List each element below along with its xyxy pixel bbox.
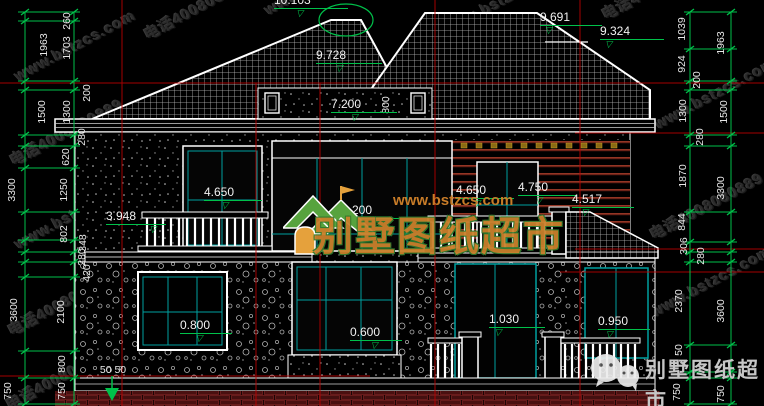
dim-label: 802 (58, 225, 70, 243)
elevation-marker: 9.728▽ (316, 49, 382, 64)
elevation-marker: 9.691▽ (540, 11, 602, 26)
cad-elevation-screenshot: www.bstzcs.com 电话4008080889 www.bstzcs.c… (0, 0, 764, 406)
dim-label: 1703 (61, 36, 73, 59)
dim-label: 3600 (715, 299, 727, 322)
dim-label: 306 (678, 237, 690, 255)
elevation-marker: 4.650▽ (204, 186, 262, 201)
elevation-marker: 7.200▽ (331, 98, 397, 113)
brand-logo: www.bstzcs.com 别墅图纸超市 (283, 178, 599, 264)
dim-label: 620 (60, 148, 72, 166)
dim-label: 280 (694, 128, 706, 146)
logo-brand-text: 别墅图纸超市 (313, 204, 565, 262)
dim-label: 3300 (715, 176, 727, 199)
elevation-marker: 1.030▽ (489, 313, 545, 328)
dim-label: 2100 (55, 300, 67, 323)
dim-label: 1250 (58, 178, 70, 201)
window-1f-left (138, 272, 227, 350)
dim-label: 3600 (8, 298, 20, 321)
brick-base (55, 391, 660, 406)
dim-label: 280 (76, 128, 88, 146)
dim-label: 1300 (61, 100, 73, 123)
dim-label: 1500 (718, 100, 730, 123)
dim-label: 2370 (673, 289, 685, 312)
elevation-marker: 0.800▽ (180, 319, 232, 334)
dim-label: 1039 (676, 17, 688, 40)
dim-label: 1963 (38, 33, 50, 56)
dim-label: 200 (81, 84, 93, 102)
elevation-marker: 0.950▽ (598, 315, 650, 330)
dim-label: 844 (676, 213, 688, 231)
footer-brand-text: 别墅图纸超市 (645, 354, 764, 406)
dim-label: 3300 (6, 178, 18, 201)
elevation-marker: 9.324▽ (600, 25, 664, 40)
dim-label: 200 (691, 71, 703, 89)
dim-label: 1500 (36, 100, 48, 123)
elevation-marker: 0.600▽ (350, 326, 402, 341)
dim-label: 1870 (677, 164, 689, 187)
elevation-marker: 3.948▽ (106, 210, 166, 225)
dim-label: 750 (2, 382, 14, 400)
dim-label: 750 (56, 382, 68, 400)
dim-label: 280 (695, 247, 707, 265)
window-1f-center (288, 262, 401, 378)
window-1f-right (585, 268, 648, 358)
stone-sill (288, 355, 401, 378)
elevation-marker: 10.103▽ (274, 0, 348, 9)
chat-logo-icon (588, 350, 644, 394)
dim-label: 420 (81, 264, 93, 282)
plinth-band (75, 378, 655, 391)
footer-brand: 别墅图纸超市 (588, 346, 764, 396)
dim-label: 800 (56, 355, 68, 373)
dim-label: 924 (676, 55, 688, 73)
dim-label: 1963 (715, 31, 727, 54)
dim-label: 1300 (677, 99, 689, 122)
dim-label: 260 (61, 12, 73, 30)
dim-label: 50 50 (100, 364, 126, 376)
